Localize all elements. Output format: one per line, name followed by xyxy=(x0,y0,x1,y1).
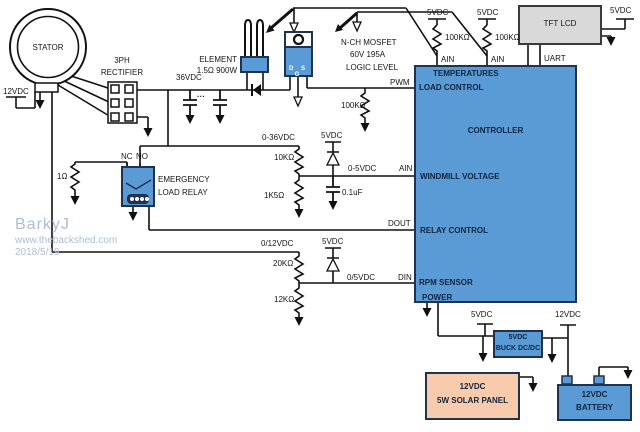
buck-label-1: 5VDC xyxy=(493,333,543,342)
relay-name-1: EMERGENCY xyxy=(158,175,210,184)
panel-label-2: 5W SOLAR PANEL xyxy=(425,396,520,405)
mosfet-pins-label: D S G xyxy=(285,66,312,78)
element-label: ELEMENT xyxy=(197,55,237,64)
temp-pin-a: AIN xyxy=(441,55,454,64)
cap-01uf xyxy=(326,176,340,201)
panel-label-1: 12VDC xyxy=(425,382,520,391)
dump-resistor-label: 1Ω xyxy=(57,172,67,181)
pin-load-control: LOAD CONTROL xyxy=(419,83,483,92)
controller-box xyxy=(414,65,577,303)
tft-label: TFT LCD xyxy=(518,19,602,28)
mosfet-mounting-hole xyxy=(294,35,303,44)
pin-temperatures: TEMPERATURES xyxy=(433,69,499,78)
temp-supply-b: 5VDC xyxy=(477,8,498,17)
resistor-12k xyxy=(295,284,303,317)
rectifier-symbol xyxy=(108,82,137,123)
watermark-date: 2018/5/19 xyxy=(15,247,60,258)
rpm-r2-label: 12KΩ xyxy=(274,295,294,304)
pin-rpm-sensor: RPM SENSOR xyxy=(419,278,473,287)
windmill-input-label: 0-36VDC xyxy=(262,133,295,142)
element-rating: 1.5Ω 900W xyxy=(192,66,237,75)
filter-cap-label: 0.1uF xyxy=(342,188,362,197)
windmill-pin-label: AIN xyxy=(399,164,412,173)
pin-relay-control: RELAY CONTROL xyxy=(420,226,488,235)
element-base xyxy=(241,57,268,72)
dout-label: DOUT xyxy=(388,219,411,228)
resistor-20k xyxy=(295,252,303,284)
rail-12v-label: 12VDC xyxy=(555,310,581,319)
resistor-1ohm xyxy=(71,162,79,196)
rectifier-label-1: 3PH xyxy=(101,56,143,65)
temp-probe-wire-a xyxy=(293,8,437,56)
temp-pin-b: AIN xyxy=(491,55,504,64)
windmill-clamp-supply: 5VDC xyxy=(321,131,342,140)
resistor-pullup-a xyxy=(433,25,441,65)
temp-supply-a: 5VDC xyxy=(427,8,448,17)
rail-12v-wire xyxy=(543,325,576,376)
rail-5v-label: 5VDC xyxy=(471,310,492,319)
flyback-diode xyxy=(253,84,261,96)
gate-pulldown-label: 100KΩ xyxy=(341,101,366,110)
windmill-r2-label: 1K5Ω xyxy=(264,191,284,200)
probe-arrow-shaft xyxy=(271,9,293,28)
mosfet-type: LOGIC LEVEL xyxy=(346,63,398,72)
relay-name-2: LOAD RELAY xyxy=(158,188,208,197)
stator-label: STATOR xyxy=(18,43,78,52)
rpm-r1-label: 20KΩ xyxy=(273,259,293,268)
pin-windmill-voltage: WINDMILL VOLTAGE xyxy=(420,172,500,181)
pin-power: POWER xyxy=(422,293,452,302)
windmill-r1-label: 10KΩ xyxy=(274,153,294,162)
caps-ellipsis: ··· xyxy=(197,92,205,101)
relay-no-label: NO xyxy=(136,152,148,161)
stator-connector xyxy=(35,83,58,92)
temp-resistor-b: 100KΩ xyxy=(495,33,520,42)
element-tube xyxy=(257,20,263,57)
resistor-pullup-b xyxy=(483,25,491,65)
dout-wire xyxy=(133,206,414,230)
windmill-controller-schematic: BarkyJ www.thebackshed.com 2018/5/19 STA… xyxy=(0,0,640,432)
rpm-input-label: 0/12VDC xyxy=(261,239,293,248)
controller-title: CONTROLLER xyxy=(414,126,577,135)
pwm-label: PWM xyxy=(390,78,410,87)
rectifier-label-2: RECTIFIER xyxy=(96,68,148,77)
battery-label-2: BATTERY xyxy=(557,403,632,412)
tft-supply-label: 5VDC xyxy=(610,6,631,15)
buck-label-2: BUCK DC/DC xyxy=(493,344,543,353)
watermark-author: BarkyJ xyxy=(15,216,70,234)
rpm-output-label: 0/5VDC xyxy=(347,273,375,282)
rpm-clamp-supply: 5VDC xyxy=(322,237,343,246)
uart-label: UART xyxy=(544,54,566,63)
relay-symbol xyxy=(122,167,154,206)
battery-label-1: 12VDC xyxy=(557,390,632,399)
din-label: DIN xyxy=(398,273,412,282)
rpm-wire xyxy=(52,92,299,252)
battery-terminals xyxy=(562,376,604,384)
stator-12v-label: 12VDC xyxy=(3,87,29,96)
temp-resistor-a: 100KΩ xyxy=(445,33,470,42)
resistor-1k5 xyxy=(295,177,303,209)
windmill-output-label: 0-5VDC xyxy=(348,164,376,173)
mosfet-rating: 60V 195A xyxy=(350,50,385,59)
relay-nc-label: NC xyxy=(121,152,133,161)
mosfet-name: N-CH MOSFET xyxy=(341,38,397,47)
resistor-10k xyxy=(295,146,303,177)
watermark-site: www.thebackshed.com xyxy=(15,235,117,246)
uart-wires xyxy=(528,45,540,65)
element-tube xyxy=(245,20,251,57)
